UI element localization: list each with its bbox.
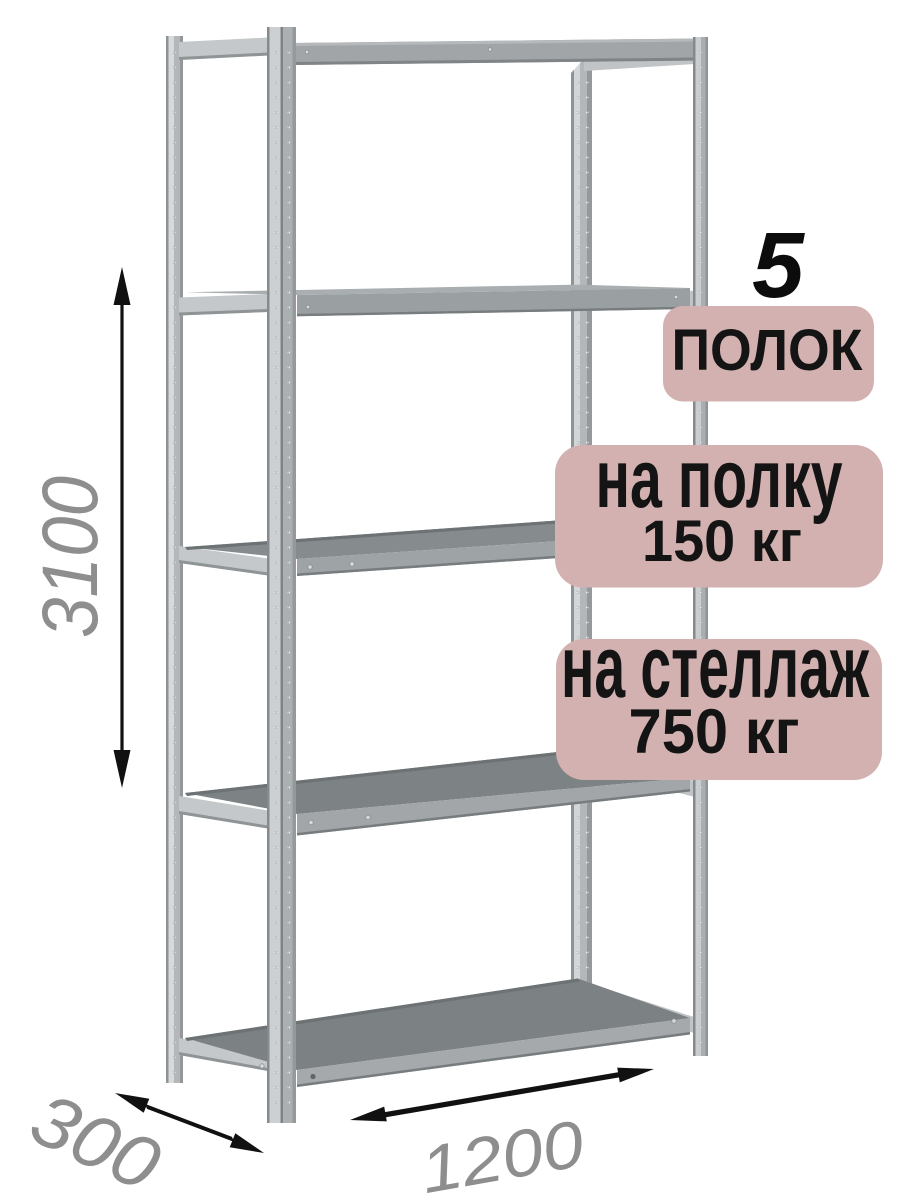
svg-text:150 кг: 150 кг xyxy=(642,509,802,574)
svg-text:5: 5 xyxy=(752,213,805,317)
svg-text:3100: 3100 xyxy=(25,476,114,638)
svg-text:750 кг: 750 кг xyxy=(629,697,800,767)
svg-text:ПОЛОК: ПОЛОК xyxy=(672,318,864,383)
